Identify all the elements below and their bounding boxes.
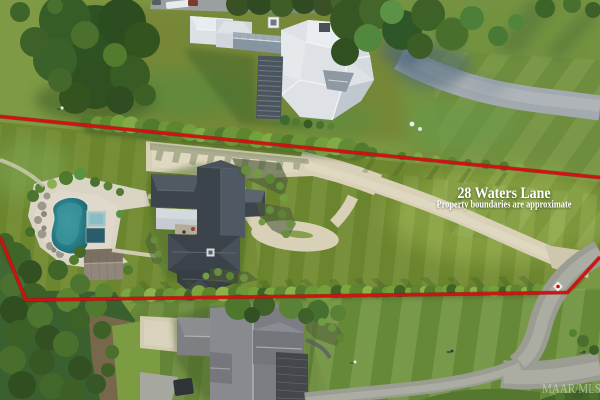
svg-text:Property boundaries are approx: Property boundaries are approximate: [437, 200, 572, 211]
svg-text:MAAR/MLS: MAAR/MLS: [542, 381, 600, 396]
